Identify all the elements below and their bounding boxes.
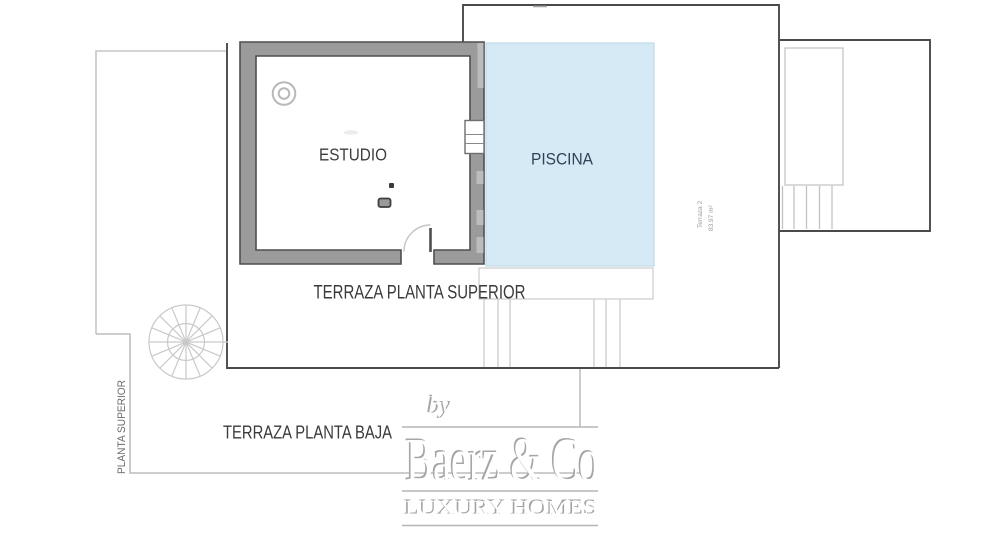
svg-text:83.97 m²: 83.97 m² (708, 205, 715, 231)
svg-text:Baerz & Co: Baerz & Co (406, 427, 599, 495)
svg-text:PLANTA SUPERIOR: PLANTA SUPERIOR (116, 380, 128, 474)
svg-text:by: by (428, 393, 453, 420)
svg-text:LUXURY HOMES: LUXURY HOMES (405, 496, 598, 520)
svg-text:TERRAZA PLANTA BAJA: TERRAZA PLANTA BAJA (223, 423, 392, 443)
svg-text:Terraza 2: Terraza 2 (697, 201, 704, 228)
svg-text:ESTUDIO: ESTUDIO (319, 145, 387, 165)
svg-text:PISCINA: PISCINA (531, 151, 593, 169)
svg-text:TERRAZA PLANTA SUPERIOR: TERRAZA PLANTA SUPERIOR (314, 283, 526, 304)
